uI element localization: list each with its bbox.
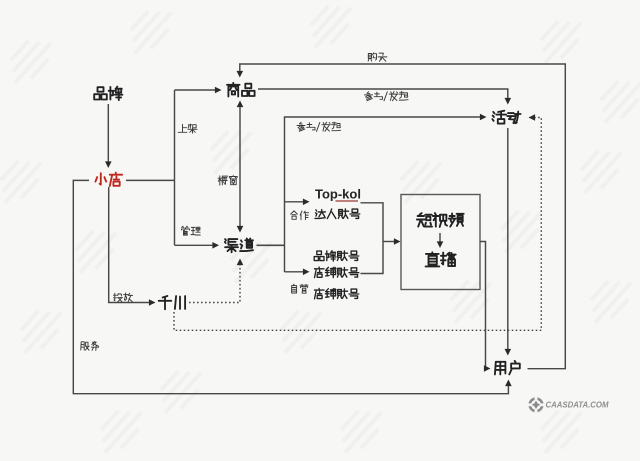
svg-text:Top-kol: Top-kol — [315, 187, 361, 202]
svg-text:CAASDATA.COM: CAASDATA.COM — [546, 401, 609, 410]
